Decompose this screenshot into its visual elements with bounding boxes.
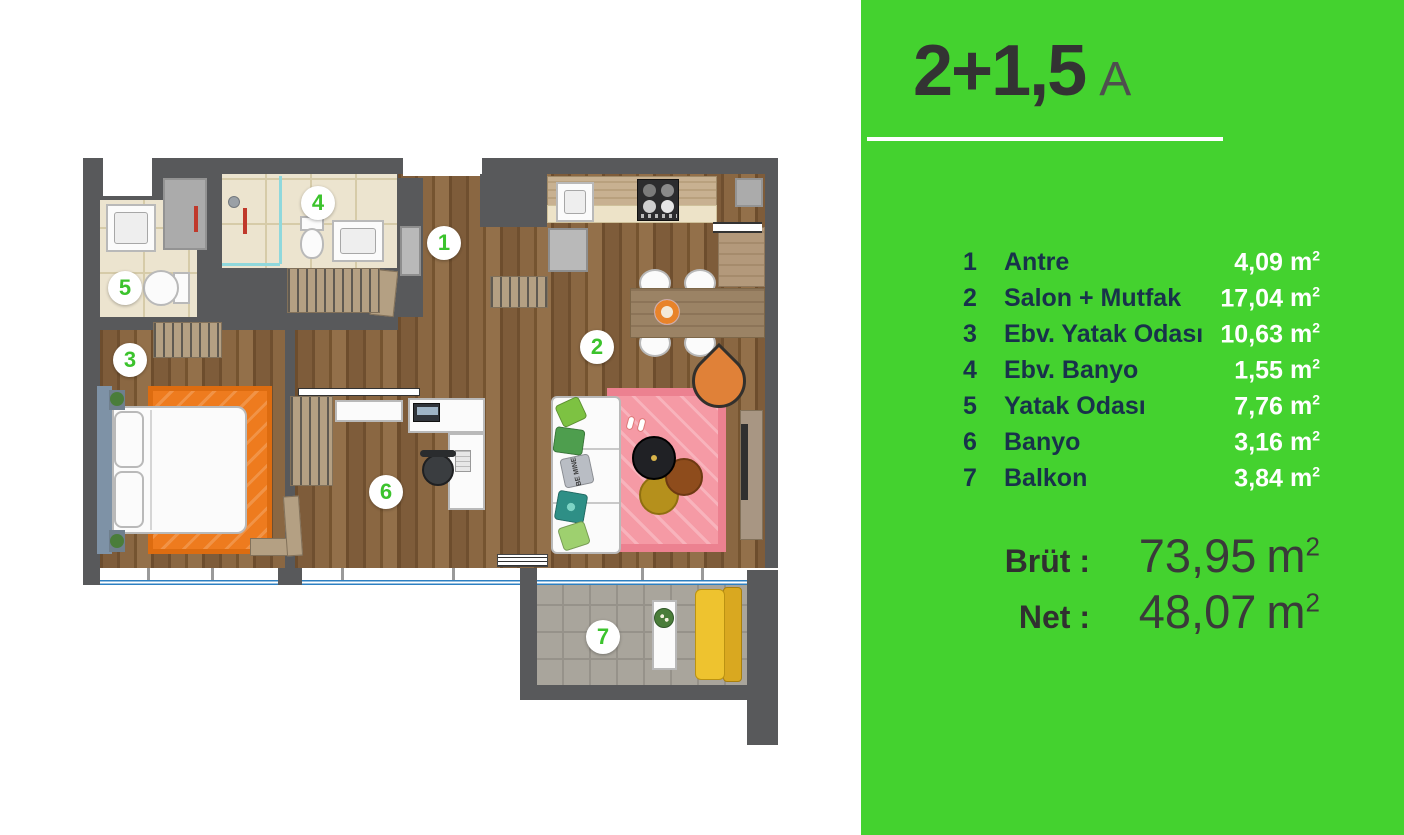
area-unit: m2	[1266, 585, 1320, 638]
monitor	[413, 403, 440, 422]
wall-shelf	[298, 388, 420, 396]
legend-room-number: 5	[948, 392, 992, 421]
burner	[643, 184, 656, 197]
marker-number: 6	[380, 479, 392, 505]
sofa-pillow	[552, 426, 585, 456]
legend-row: 3 Ebv. Yatak Odası 10,63m2	[948, 320, 1320, 356]
window-symbol	[713, 222, 762, 233]
floor-plan: BE MINE	[0, 0, 861, 835]
burner	[661, 184, 674, 197]
legend-row: 1 Antre 4,09m2	[948, 248, 1320, 284]
legend-room-number: 4	[948, 356, 992, 385]
unit-sup: 2	[1312, 284, 1320, 300]
room-marker-5: 5	[108, 271, 142, 305]
unit-sup: 2	[1312, 464, 1320, 480]
toilet-bowl	[143, 270, 179, 306]
desk-keypad	[455, 450, 471, 472]
unit-m: m	[1290, 356, 1312, 384]
toilet	[143, 270, 191, 306]
area-value: 17,04	[1220, 284, 1283, 312]
marker-number: 4	[312, 190, 324, 216]
bed-pillow	[114, 471, 144, 528]
room-marker-6: 6	[369, 475, 403, 509]
net-value: 48,07m2	[1090, 584, 1320, 639]
balcony-right-wall	[747, 570, 778, 745]
tv	[741, 424, 748, 500]
room-marker-7: 7	[586, 620, 620, 654]
bed-headboard	[97, 386, 112, 554]
unit-sup: 2	[1312, 356, 1320, 372]
area-unit: m2	[1290, 284, 1320, 312]
dining-table	[630, 288, 765, 338]
facade-notch	[103, 150, 152, 196]
window-mullion	[452, 568, 455, 580]
unit-m: m	[1290, 284, 1312, 312]
unit-m: m	[1290, 248, 1312, 276]
tall-cabinet	[718, 227, 765, 287]
total-row-net: Net : 48,07m2	[940, 584, 1320, 640]
legend-row: 4 Ebv. Banyo 1,55m2	[948, 356, 1320, 392]
marker-number: 5	[119, 275, 131, 301]
burner	[643, 200, 656, 213]
legend-room-number: 6	[948, 428, 992, 457]
pantry-shelves	[490, 276, 548, 308]
area-totals: Brüt : 73,95m2 Net : 48,07m2	[940, 528, 1320, 640]
washbasin	[106, 204, 156, 252]
bedroom-wardrobe	[153, 322, 222, 358]
plan-type-title: 2+1,5	[913, 30, 1085, 112]
area-value: 10,63	[1220, 320, 1283, 348]
kitchen-partition	[480, 174, 547, 227]
plant	[110, 534, 124, 548]
room-marker-4: 4	[301, 186, 335, 220]
legend-room-name: Antre	[1004, 248, 1234, 277]
hall-cabinet	[400, 226, 421, 276]
legend-room-name: Balkon	[1004, 464, 1234, 493]
apartment-floorplan-card: BE MINE	[0, 0, 1404, 835]
legend-row: 5 Yatak Odası 7,76m2	[948, 392, 1320, 428]
area-value: 7,76	[1234, 392, 1283, 420]
washbasin	[332, 220, 384, 262]
area-value: 3,16	[1234, 428, 1283, 456]
legend-room-area: 17,04m2	[1220, 284, 1320, 313]
plan-variant-letter: A	[1099, 52, 1131, 107]
bed-pillow	[114, 411, 144, 468]
legend-room-number: 1	[948, 248, 992, 277]
total-row-brut: Brüt : 73,95m2	[940, 528, 1320, 584]
room-marker-1: 1	[427, 226, 461, 260]
unit-sup: 2	[1306, 587, 1320, 617]
window-mullion	[211, 568, 214, 580]
legend-room-number: 2	[948, 284, 992, 313]
balcony-bottom-wall	[520, 685, 747, 700]
marker-number: 1	[438, 230, 450, 256]
marker-number: 3	[124, 347, 136, 373]
towel-rail	[243, 208, 247, 234]
area-unit: m2	[1290, 248, 1320, 276]
info-panel: 2+1,5 A 1 Antre 4,09m2 2 Salon + Mutfak …	[861, 0, 1404, 835]
legend-room-area: 10,63m2	[1220, 320, 1320, 349]
unit-m: m	[1266, 585, 1305, 638]
unit-sup: 2	[1306, 531, 1320, 561]
duct-shaft	[163, 178, 207, 250]
unit-sup: 2	[1312, 392, 1320, 408]
coffee-table-detail	[651, 455, 657, 461]
area-value: 4,09	[1234, 248, 1283, 276]
area-unit: m2	[1290, 320, 1320, 348]
area-unit: m2	[1290, 464, 1320, 492]
legend-room-name: Ebv. Yatak Odası	[1004, 320, 1220, 349]
shower-glass	[222, 263, 280, 266]
basin	[114, 212, 148, 244]
plant	[110, 392, 124, 406]
unit-m: m	[1290, 464, 1312, 492]
monitor-screen	[417, 407, 438, 415]
legend-room-number: 7	[948, 464, 992, 493]
potted-plant	[654, 608, 674, 628]
legend-room-area: 7,76m2	[1234, 392, 1320, 421]
legend-row: 6 Banyo 3,16m2	[948, 428, 1320, 464]
desk-shelf	[335, 400, 403, 422]
stove-knobs	[641, 214, 677, 218]
stove	[637, 179, 679, 221]
net-label: Net :	[940, 599, 1090, 636]
total-number: 73,95	[1139, 529, 1257, 582]
unit-m: m	[1290, 428, 1312, 456]
brut-label: Brüt :	[940, 543, 1090, 580]
legend-room-name: Salon + Mutfak	[1004, 284, 1220, 313]
unit-sup: 2	[1312, 248, 1320, 264]
window-sill-band	[100, 568, 765, 580]
window-pier	[278, 568, 302, 585]
unit-m: m	[1290, 320, 1312, 348]
balcony-sofa-seat	[695, 589, 725, 680]
area-unit: m2	[1290, 356, 1320, 384]
marker-number: 7	[597, 624, 609, 650]
window-mullion	[147, 568, 150, 580]
fridge	[548, 228, 588, 272]
basin	[564, 190, 586, 214]
room-marker-2: 2	[580, 330, 614, 364]
towel-rail	[194, 206, 198, 232]
shower-glass	[279, 176, 282, 264]
room-marker-3: 3	[113, 343, 147, 377]
area-value: 3,84	[1234, 464, 1283, 492]
sofa-pillow-be-mine: BE MINE	[559, 453, 595, 489]
legend-room-area: 4,09m2	[1234, 248, 1320, 277]
unit-m: m	[1266, 529, 1305, 582]
title-underline	[867, 137, 1223, 141]
window-mullion	[701, 568, 704, 580]
shower-head	[228, 196, 240, 208]
area-value: 1,55	[1234, 356, 1283, 384]
sofa-pillow	[554, 490, 589, 525]
legend-room-area: 3,84m2	[1234, 464, 1320, 493]
basin	[340, 228, 376, 254]
unit-sup: 2	[1312, 428, 1320, 444]
total-number: 48,07	[1139, 585, 1257, 638]
balcony-left-wall	[520, 568, 537, 700]
fruit-plate	[654, 299, 680, 325]
legend-room-area: 3,16m2	[1234, 428, 1320, 457]
balcony-sofa-back	[723, 587, 742, 682]
room-legend: 1 Antre 4,09m2 2 Salon + Mutfak 17,04m2 …	[948, 248, 1320, 500]
area-unit: m2	[1290, 392, 1320, 420]
unit-m: m	[1290, 392, 1312, 420]
legend-room-name: Ebv. Banyo	[1004, 356, 1234, 385]
radiator	[497, 554, 548, 567]
legend-room-number: 3	[948, 320, 992, 349]
burner	[661, 200, 674, 213]
legend-room-area: 1,55m2	[1234, 356, 1320, 385]
wall-chunk	[222, 268, 287, 330]
legend-row: 7 Balkon 3,84m2	[948, 464, 1320, 500]
office-chair-back	[420, 450, 456, 457]
coat-wardrobe	[287, 268, 380, 313]
duct-shaft	[735, 178, 763, 207]
marker-number: 2	[591, 334, 603, 360]
brut-value: 73,95m2	[1090, 528, 1320, 583]
toilet	[298, 216, 326, 260]
window-mullion	[641, 568, 644, 580]
legend-row: 2 Salon + Mutfak 17,04m2	[948, 284, 1320, 320]
duvet-fold	[150, 410, 152, 530]
window-mullion	[341, 568, 344, 580]
kitchen-sink	[556, 182, 594, 222]
unit-sup: 2	[1312, 320, 1320, 336]
entry-door-opening	[403, 150, 482, 176]
area-unit: m2	[1290, 428, 1320, 456]
open-wardrobe	[290, 396, 333, 486]
toilet-bowl	[300, 228, 324, 259]
plan-title: 2+1,5 A	[913, 30, 1131, 112]
legend-room-name: Yatak Odası	[1004, 392, 1234, 421]
area-unit: m2	[1266, 529, 1320, 582]
left-wall-stub	[83, 568, 100, 585]
legend-room-name: Banyo	[1004, 428, 1234, 457]
office-chair	[422, 454, 454, 486]
pillow-text: BE MINE	[571, 456, 584, 486]
